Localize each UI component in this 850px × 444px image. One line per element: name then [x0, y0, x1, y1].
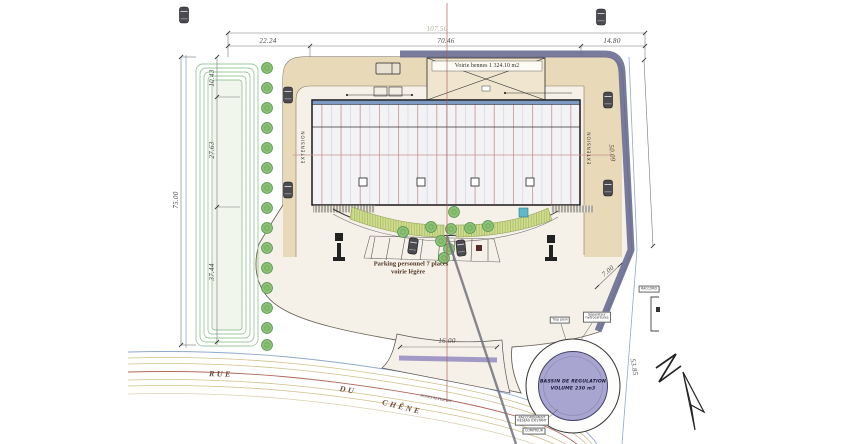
- dim-top-right: 14.80: [603, 37, 620, 45]
- car-icon: [456, 240, 467, 257]
- bins-area-label: Voirie bennes 1 324.10 m2: [455, 63, 519, 69]
- car-icon: [284, 87, 293, 103]
- dim-top-center: 70.46: [437, 37, 454, 45]
- car-icon: [284, 182, 293, 198]
- truck-icon: [376, 63, 400, 74]
- landscape-strip: [196, 64, 258, 346]
- network-tag-line2: RESEAU EXISTANT: [517, 420, 546, 424]
- container-icon: [389, 87, 402, 96]
- extension-left-label: EXTENSION: [302, 130, 307, 163]
- car-icon: [180, 7, 189, 23]
- dim-top-left: 22.24: [259, 37, 276, 45]
- street-name-rue: RUE: [209, 369, 233, 379]
- dock-hatch-left: [313, 206, 375, 213]
- extension-right-label: EXTENSION: [588, 131, 593, 164]
- parking-label-line1: Parking personnel 7 places: [374, 261, 449, 268]
- dim-left-total: 75.00: [172, 191, 180, 208]
- connection-tag: RACCORD: [639, 286, 660, 293]
- water-feature: [519, 208, 528, 217]
- entrance-wall-band: [399, 358, 497, 360]
- north-arrow-icon: [656, 354, 704, 430]
- separator-tag: Séparateur hydrocarbures: [583, 312, 611, 323]
- meter-tag: COMPTEUR: [523, 428, 546, 435]
- dim-top-total: 107.50: [426, 25, 447, 33]
- network-tag: RACCORDEMENT RESEAU EXISTANT: [515, 415, 549, 426]
- dim-right-upper: 50.09: [607, 144, 617, 162]
- site-plan-drawing: [0, 0, 850, 444]
- dim-access-width: 16.00: [438, 337, 455, 345]
- car-icon: [604, 92, 613, 108]
- dim-left-seg1: 10.43: [208, 69, 216, 86]
- dim-left-seg2: 27.63: [208, 141, 216, 158]
- separator-tag-line2: hydrocarbures: [585, 317, 608, 321]
- dim-left-seg3: 37.44: [208, 263, 216, 280]
- car-icon: [597, 9, 606, 25]
- container-icon: [374, 87, 387, 96]
- tree-row: [262, 63, 273, 351]
- site-plan-canvas: 107.50 22.24 70.46 14.80 75.00 10.43 27.…: [0, 0, 850, 444]
- building-front-band: [312, 100, 580, 105]
- overflow-tag: Trop plein: [550, 317, 570, 324]
- connection-bracket: [651, 297, 660, 331]
- car-icon: [604, 180, 613, 196]
- basin-label-line1: BASSIN DE REGULATION: [540, 380, 606, 385]
- door-mark: [476, 245, 482, 251]
- car-icon: [407, 237, 418, 254]
- basin-label-line2: VOLUME 230 m3: [551, 387, 596, 392]
- building: [312, 100, 593, 213]
- parking-label-line2: voirie légère: [391, 268, 425, 275]
